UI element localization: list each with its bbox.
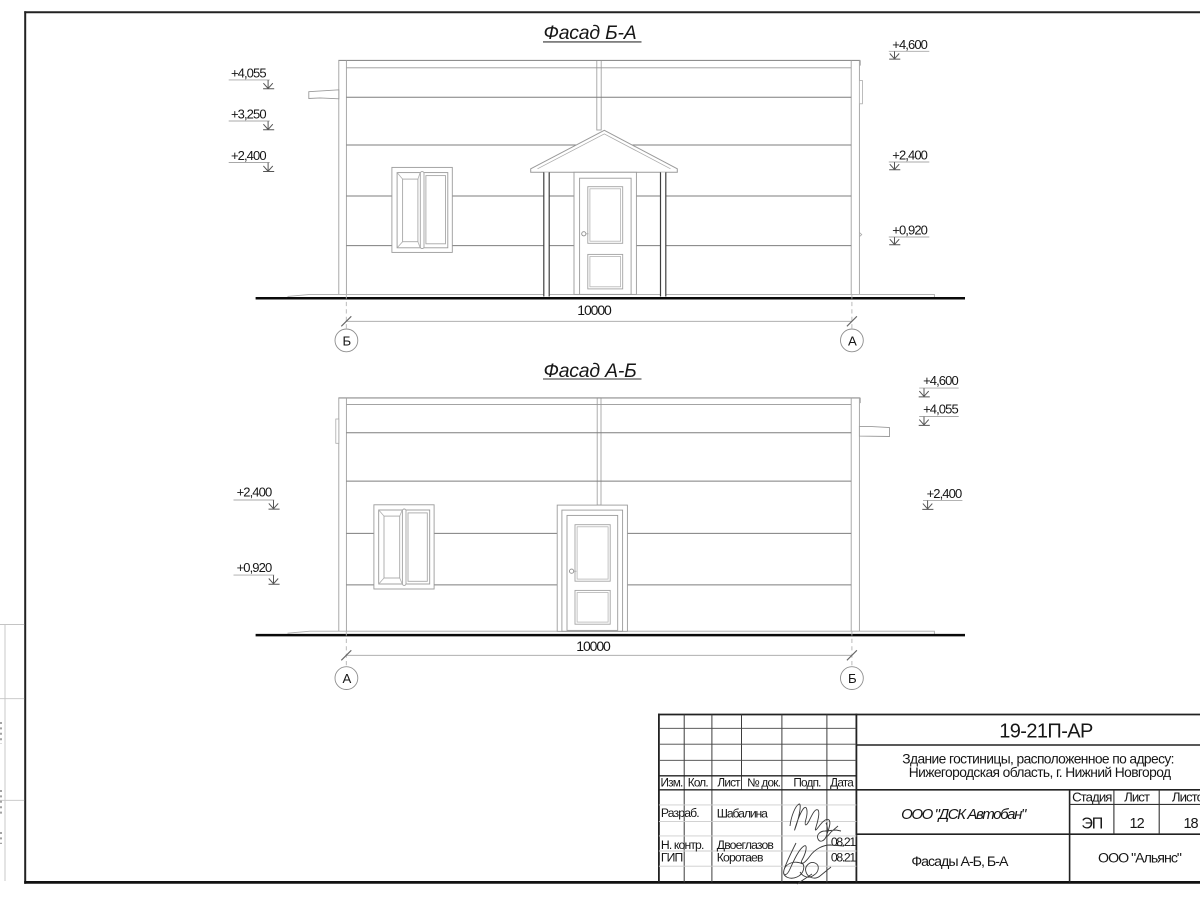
svg-text:08.21: 08.21: [831, 835, 857, 849]
svg-text:А: А: [342, 671, 351, 686]
svg-text:Стадия: Стадия: [1072, 790, 1112, 805]
svg-text:Подп.: Подп.: [793, 776, 821, 790]
svg-text:Лист: Лист: [1124, 790, 1150, 805]
svg-text:Разраб.: Разраб.: [661, 806, 699, 820]
svg-text:Лист: Лист: [717, 776, 741, 790]
svg-text:ГИП: ГИП: [661, 851, 683, 865]
svg-text:10000: 10000: [577, 302, 612, 318]
svg-text:Кол.: Кол.: [688, 776, 709, 790]
svg-text:Нижегородская область, г. Нижн: Нижегородская область, г. Нижний Новгоро…: [909, 765, 1171, 780]
svg-text:Б: Б: [848, 671, 856, 686]
svg-text:А: А: [848, 333, 857, 348]
svg-text:+2,400: +2,400: [231, 148, 266, 163]
svg-text:08.21: 08.21: [831, 850, 857, 864]
svg-text:+3,250: +3,250: [231, 107, 266, 122]
svg-text:10000: 10000: [576, 638, 611, 654]
svg-text:Листов: Листов: [1172, 790, 1200, 805]
svg-text:Фасад Б-А: Фасад Б-А: [544, 22, 637, 44]
svg-text:ООО "Альянс": ООО "Альянс": [1098, 851, 1182, 867]
svg-text:Б: Б: [343, 333, 351, 348]
svg-text:+4,600: +4,600: [923, 373, 958, 388]
svg-text:Двоеглазов: Двоеглазов: [717, 838, 774, 852]
svg-text:Коротаев: Коротаев: [717, 851, 763, 865]
svg-text:19-21П-АР: 19-21П-АР: [999, 721, 1093, 743]
svg-text:18: 18: [1183, 816, 1198, 832]
svg-text:+2,400: +2,400: [927, 486, 962, 501]
svg-text:№ док.: № док.: [747, 776, 780, 790]
svg-text:Н. контр.: Н. контр.: [661, 838, 704, 852]
svg-text:Изм.: Изм.: [661, 776, 684, 790]
svg-text:ЭП: ЭП: [1081, 816, 1102, 833]
svg-text:+0,920: +0,920: [237, 560, 272, 575]
svg-text:Шабалина: Шабалина: [717, 807, 768, 821]
svg-text:+4,055: +4,055: [231, 66, 266, 81]
svg-text:+4,600: +4,600: [892, 37, 927, 52]
svg-text:+2,400: +2,400: [237, 485, 272, 500]
svg-text:+0,920: +0,920: [892, 223, 927, 238]
svg-text:Дата: Дата: [830, 776, 854, 790]
svg-text:12: 12: [1130, 816, 1145, 832]
svg-text:+4,055: +4,055: [923, 401, 958, 416]
svg-text:ООО "ДСК Автобан": ООО "ДСК Автобан": [901, 806, 1027, 823]
svg-text:Фасады А-Б, Б-А: Фасады А-Б, Б-А: [911, 854, 1009, 870]
svg-text:+2,400: +2,400: [892, 148, 927, 163]
